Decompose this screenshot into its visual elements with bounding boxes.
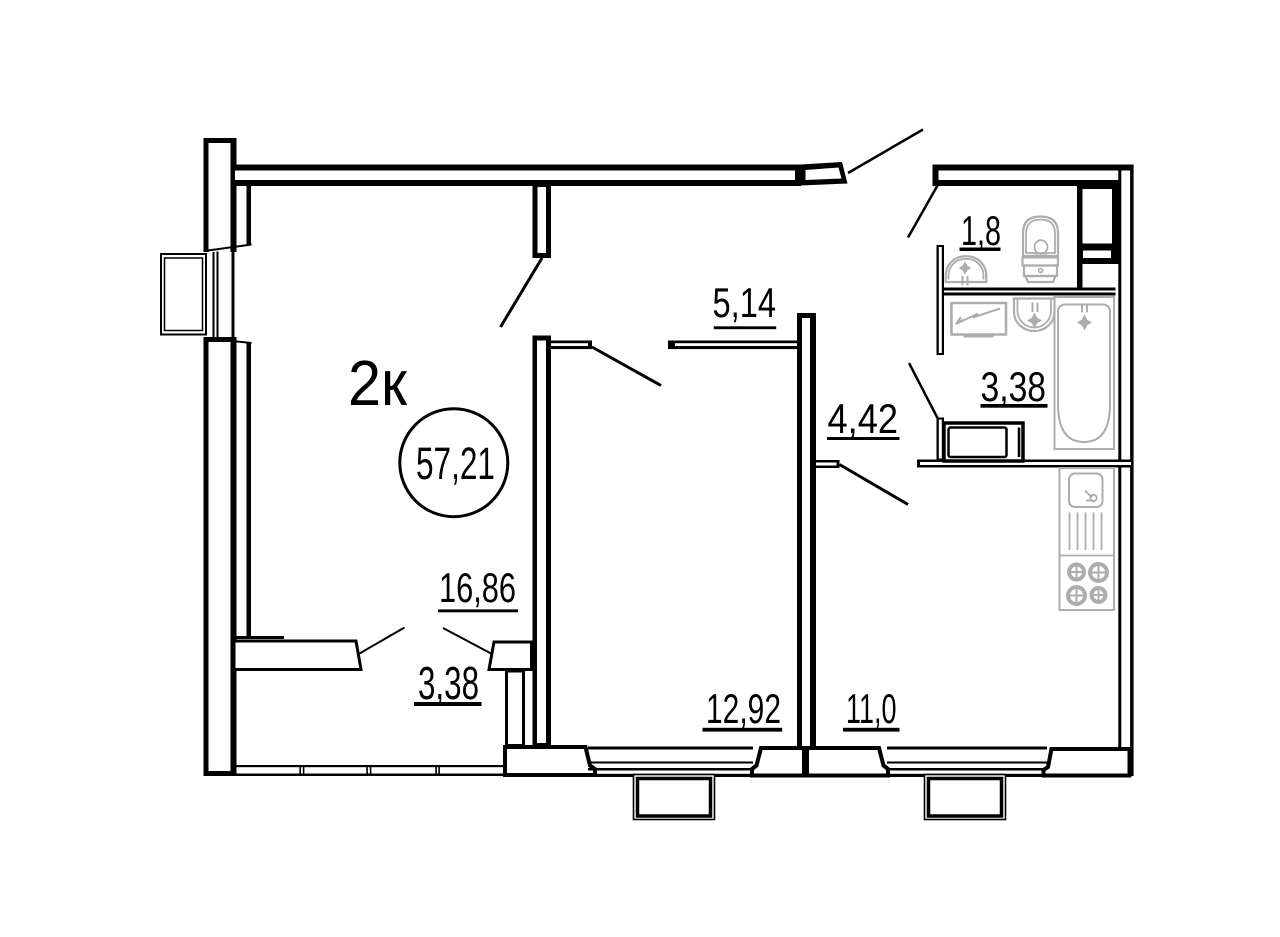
svg-text:1,8: 1,8 — [961, 207, 1001, 254]
svg-text:12,92: 12,92 — [706, 685, 781, 732]
svg-text:16,86: 16,86 — [439, 564, 516, 611]
svg-text:3,38: 3,38 — [981, 363, 1047, 410]
svg-text:5,14: 5,14 — [713, 279, 777, 326]
svg-text:11,0: 11,0 — [846, 685, 897, 732]
svg-text:57,21: 57,21 — [416, 438, 495, 489]
svg-text:4,42: 4,42 — [828, 395, 899, 442]
svg-text:3,38: 3,38 — [418, 657, 479, 709]
svg-text:2к: 2к — [348, 347, 408, 419]
